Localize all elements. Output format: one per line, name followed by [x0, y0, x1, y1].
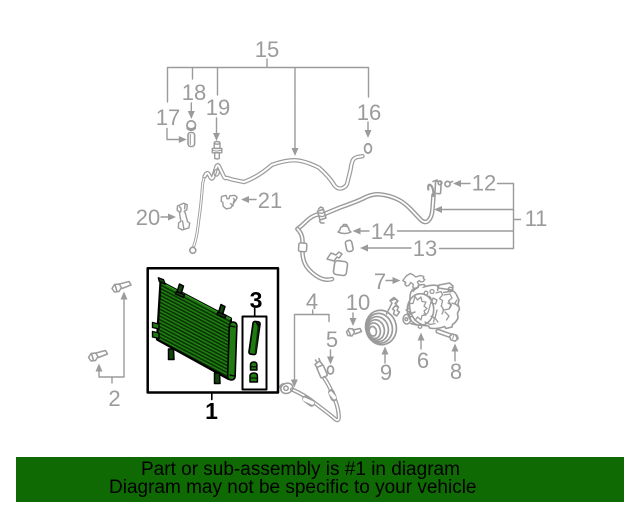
svg-text:10: 10	[346, 290, 370, 315]
svg-text:17: 17	[156, 105, 180, 130]
svg-text:8: 8	[450, 359, 462, 384]
svg-text:14: 14	[371, 219, 395, 244]
svg-text:13: 13	[413, 236, 437, 261]
svg-text:1: 1	[205, 398, 218, 424]
svg-text:6: 6	[417, 348, 429, 373]
svg-text:4: 4	[306, 289, 318, 314]
svg-text:18: 18	[182, 80, 206, 105]
svg-text:19: 19	[206, 95, 230, 120]
svg-text:3: 3	[250, 287, 263, 313]
svg-text:2: 2	[108, 386, 120, 411]
svg-text:16: 16	[357, 100, 381, 125]
svg-text:20: 20	[136, 205, 160, 230]
svg-text:12: 12	[472, 171, 496, 196]
svg-text:5: 5	[326, 327, 338, 352]
svg-text:15: 15	[255, 37, 279, 62]
svg-text:11: 11	[525, 206, 548, 231]
svg-text:9: 9	[380, 360, 392, 385]
svg-text:21: 21	[258, 188, 282, 213]
svg-text:7: 7	[374, 269, 386, 294]
